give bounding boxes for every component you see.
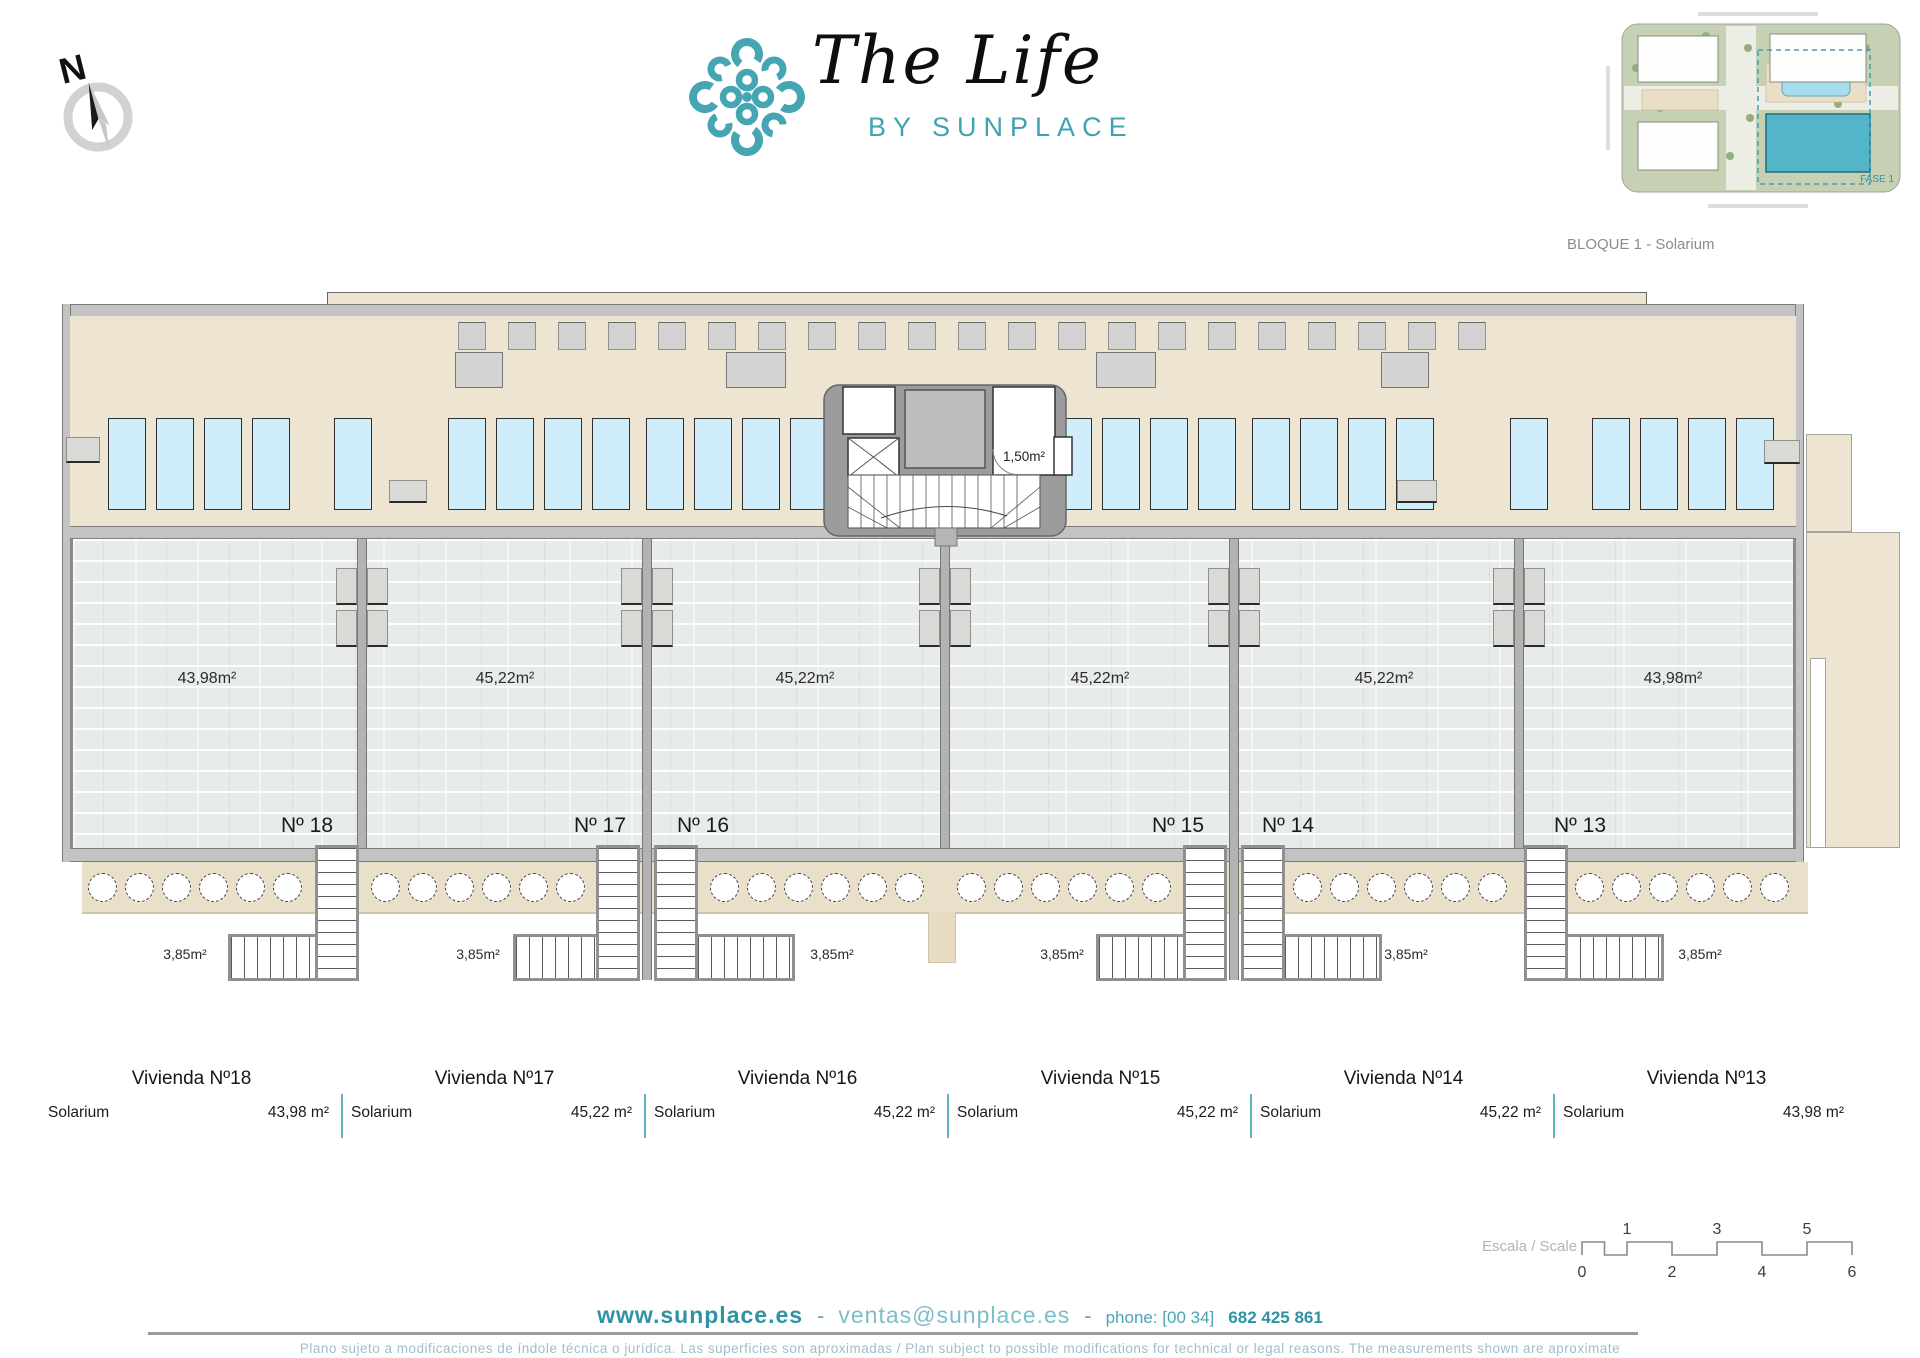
legend-area-value: 45,22 m² <box>1480 1104 1541 1122</box>
legend-room-label: Solarium <box>48 1104 109 1122</box>
sun-lounger <box>1736 418 1774 510</box>
roof-vent <box>758 322 786 350</box>
unit-area-label: 45,22m² <box>1071 670 1130 688</box>
sun-lounger <box>1592 418 1630 510</box>
roof-vent <box>958 322 986 350</box>
planter-box <box>1524 610 1545 647</box>
roof-vent <box>1158 322 1186 350</box>
round-planter <box>1649 873 1678 902</box>
legend-area-value: 45,22 m² <box>874 1104 935 1122</box>
roof-skylight <box>1096 352 1156 388</box>
legend-title: Vivienda Nº14 <box>1252 1058 1555 1090</box>
legal-disclaimer: Plano sujeto a modificaciones de índole … <box>24 1341 1896 1356</box>
round-planter <box>1686 873 1715 902</box>
planter-box <box>389 480 427 503</box>
brand-title: The Life <box>812 22 1103 99</box>
planter-box <box>367 610 388 647</box>
brand-knot-icon <box>685 34 809 162</box>
round-planter <box>88 873 117 902</box>
sun-lounger <box>1348 418 1386 510</box>
stair-area-label: 3,85m² <box>163 946 207 962</box>
scale-bar: 1 3 5 0 2 4 6 <box>1572 1206 1872 1286</box>
planter-box <box>1208 568 1229 605</box>
roof-vent <box>708 322 736 350</box>
stair-shaft-unit15 <box>1183 845 1227 981</box>
round-planter <box>858 873 887 902</box>
planter-box <box>1764 440 1800 464</box>
stair-shaft-unit14 <box>1241 845 1285 981</box>
stair-shaft-unit17 <box>596 845 640 981</box>
planter-box <box>1493 610 1514 647</box>
unit-divider-wall <box>940 539 950 848</box>
compass-north-label: N <box>55 46 90 92</box>
round-planter <box>1760 873 1789 902</box>
sun-lounger <box>1688 418 1726 510</box>
sun-lounger <box>544 418 582 510</box>
legend-column-13: Vivienda Nº13 Solarium43,98 m² <box>1555 1058 1858 1140</box>
stair-flight-unit13 <box>1564 934 1664 981</box>
sun-lounger <box>156 418 194 510</box>
roof-vent <box>1208 322 1236 350</box>
planter-box <box>1239 568 1260 605</box>
roof-vent <box>1458 322 1486 350</box>
legend-title: Vivienda Nº15 <box>949 1058 1252 1090</box>
sun-lounger <box>1300 418 1338 510</box>
round-planter <box>236 873 265 902</box>
legend-room-label: Solarium <box>351 1104 412 1122</box>
adjacent-terrace-strip <box>1806 434 1852 532</box>
sun-lounger <box>1150 418 1188 510</box>
round-planter <box>1612 873 1641 902</box>
planter-box <box>950 568 971 605</box>
planter-box <box>336 610 357 647</box>
round-planter <box>747 873 776 902</box>
block-caption: BLOQUE 1 - Solarium <box>1567 236 1715 253</box>
stair-shaft-unit16 <box>654 845 698 981</box>
round-planter <box>895 873 924 902</box>
footer-separator: - <box>1084 1303 1091 1329</box>
roof-vent <box>1108 322 1136 350</box>
round-planter <box>1478 873 1507 902</box>
website-link[interactable]: www.sunplace.es <box>597 1302 803 1329</box>
unit-area-label: 45,22m² <box>776 670 835 688</box>
footer-contact-row: www.sunplace.es - ventas@sunplace.es - p… <box>0 1302 1920 1329</box>
legend-room-label: Solarium <box>654 1104 715 1122</box>
roof-vent <box>1358 322 1386 350</box>
stair-shaft-unit13 <box>1524 845 1568 981</box>
roof-vent <box>1258 322 1286 350</box>
roof-vent <box>908 322 936 350</box>
planter-box <box>919 610 940 647</box>
planter-box <box>1524 568 1545 605</box>
svg-text:1: 1 <box>1623 1221 1632 1238</box>
sun-lounger <box>694 418 732 510</box>
roof-vent <box>808 322 836 350</box>
stair-area-label: 3,85m² <box>810 946 854 962</box>
unit-area-label: 43,98m² <box>178 670 237 688</box>
legend-column-17: Vivienda Nº17 Solarium45,22 m² <box>343 1058 646 1140</box>
stair-flight-unit14 <box>1282 934 1382 981</box>
stair-flight-unit17 <box>513 934 599 981</box>
footer-separator: - <box>817 1303 824 1329</box>
planter-box <box>66 437 100 463</box>
round-planter <box>821 873 850 902</box>
unit-area-label: 45,22m² <box>1355 670 1414 688</box>
roof-vent <box>1308 322 1336 350</box>
sun-lounger <box>252 418 290 510</box>
planter-box <box>919 568 940 605</box>
legend-title: Vivienda Nº13 <box>1555 1058 1858 1090</box>
roof-vent <box>1058 322 1086 350</box>
stair-area-label: 3,85m² <box>1678 946 1722 962</box>
sun-lounger <box>448 418 486 510</box>
round-planter <box>408 873 437 902</box>
planter-box <box>1208 610 1229 647</box>
legend-title: Vivienda Nº18 <box>40 1058 343 1090</box>
sun-lounger <box>496 418 534 510</box>
stair-flight-unit18 <box>228 934 318 981</box>
round-planter <box>957 873 986 902</box>
phone-label: phone: [00 34] <box>1106 1308 1215 1328</box>
round-planter <box>1441 873 1470 902</box>
round-planter <box>162 873 191 902</box>
legend-column-15: Vivienda Nº15 Solarium45,22 m² <box>949 1058 1252 1140</box>
unit-number-label: Nº 13 <box>1554 814 1606 838</box>
round-planter <box>1575 873 1604 902</box>
footer-divider <box>148 1332 1638 1335</box>
email-link[interactable]: ventas@sunplace.es <box>838 1302 1070 1329</box>
unit-number-label: Nº 17 <box>574 814 626 838</box>
round-planter <box>1105 873 1134 902</box>
unit-number-label: Nº 16 <box>677 814 729 838</box>
stair-area-label: 3,85m² <box>1384 946 1428 962</box>
round-planter <box>1031 873 1060 902</box>
svg-text:6: 6 <box>1848 1264 1857 1281</box>
legend-room-label: Solarium <box>957 1104 1018 1122</box>
unit-legend-table: Vivienda Nº18 Solarium43,98 m² Vivienda … <box>40 1058 1858 1140</box>
right-wall <box>1795 304 1804 862</box>
legend-column-16: Vivienda Nº16 Solarium45,22 m² <box>646 1058 949 1140</box>
legend-area-value: 45,22 m² <box>1177 1104 1238 1122</box>
roof-vent <box>508 322 536 350</box>
roof-vent <box>658 322 686 350</box>
unit-divider-wall <box>1514 539 1524 848</box>
scale-label: Escala / Scale <box>1482 1238 1577 1255</box>
core-area-label: 1,50m² <box>1003 449 1046 464</box>
round-planter <box>199 873 228 902</box>
sun-lounger <box>1252 418 1290 510</box>
sun-lounger <box>1102 418 1140 510</box>
sun-lounger <box>1640 418 1678 510</box>
round-planter <box>273 873 302 902</box>
roof-skylight <box>455 352 503 388</box>
round-planter <box>994 873 1023 902</box>
stair-core: 1,50m² <box>823 384 1075 548</box>
phone-number: 682 425 861 <box>1228 1308 1323 1328</box>
walkway-stub <box>928 912 956 963</box>
roof-vent <box>608 322 636 350</box>
planter-box <box>652 568 673 605</box>
svg-text:4: 4 <box>1758 1264 1767 1281</box>
unit-area-label: 43,98m² <box>1644 670 1703 688</box>
stair-area-label: 3,85m² <box>1040 946 1084 962</box>
planter-box <box>621 568 642 605</box>
planter-box <box>652 610 673 647</box>
sun-lounger <box>108 418 146 510</box>
planter-box <box>336 568 357 605</box>
round-planter <box>445 873 474 902</box>
legend-column-18: Vivienda Nº18 Solarium43,98 m² <box>40 1058 343 1140</box>
planter-box <box>1493 568 1514 605</box>
stair-shaft-unit18 <box>315 845 359 981</box>
roof-vent <box>1408 322 1436 350</box>
round-planter <box>482 873 511 902</box>
roof-vent <box>1008 322 1036 350</box>
round-planter <box>784 873 813 902</box>
svg-text:2: 2 <box>1668 1264 1677 1281</box>
stair-flight-unit15 <box>1096 934 1186 981</box>
legend-room-label: Solarium <box>1260 1104 1321 1122</box>
unit-area-label: 45,22m² <box>476 670 535 688</box>
legend-area-value: 45,22 m² <box>571 1104 632 1122</box>
stair-flight-unit16 <box>695 934 795 981</box>
legend-title: Vivienda Nº16 <box>646 1058 949 1090</box>
sun-lounger <box>646 418 684 510</box>
round-planter <box>371 873 400 902</box>
unit-number-label: Nº 18 <box>281 814 333 838</box>
legend-room-label: Solarium <box>1563 1104 1624 1122</box>
roof-vent <box>558 322 586 350</box>
brand-subtitle: BY SUNPLACE <box>868 112 1134 143</box>
stair-area-label: 3,85m² <box>456 946 500 962</box>
planter-box <box>950 610 971 647</box>
roof-skylight <box>1381 352 1429 388</box>
round-planter <box>710 873 739 902</box>
planter-box <box>621 610 642 647</box>
unit-divider-wall <box>357 539 367 848</box>
round-planter <box>1404 873 1433 902</box>
legend-title: Vivienda Nº17 <box>343 1058 646 1090</box>
sun-lounger <box>204 418 242 510</box>
unit-divider-wall <box>1229 539 1239 980</box>
svg-text:0: 0 <box>1578 1264 1587 1281</box>
round-planter <box>519 873 548 902</box>
unit-number-label: Nº 14 <box>1262 814 1314 838</box>
compass-icon: N <box>40 35 170 165</box>
sun-lounger <box>592 418 630 510</box>
round-planter <box>556 873 585 902</box>
round-planter <box>1367 873 1396 902</box>
adjacent-terrace-slot <box>1810 658 1826 848</box>
unit-divider-wall <box>642 539 652 980</box>
sun-lounger <box>1198 418 1236 510</box>
svg-text:3: 3 <box>1713 1221 1722 1238</box>
round-planter <box>1068 873 1097 902</box>
sun-lounger <box>334 418 372 510</box>
legend-area-value: 43,98 m² <box>1783 1104 1844 1122</box>
sun-lounger <box>1510 418 1548 510</box>
round-planter <box>125 873 154 902</box>
round-planter <box>1330 873 1359 902</box>
roof-vent <box>458 322 486 350</box>
fase-label: FASE 1 <box>1860 174 1894 185</box>
planter-box <box>1239 610 1260 647</box>
legend-column-14: Vivienda Nº14 Solarium45,22 m² <box>1252 1058 1555 1140</box>
roof-skylight <box>726 352 786 388</box>
planter-box <box>1397 480 1437 503</box>
round-planter <box>1142 873 1171 902</box>
planter-box <box>367 568 388 605</box>
roof-vent <box>858 322 886 350</box>
floor-plan-page: N The Life BY SUNPLACE <box>0 0 1920 1358</box>
unit-number-label: Nº 15 <box>1152 814 1204 838</box>
round-planter <box>1293 873 1322 902</box>
site-plan-thumbnail: FASE 1 <box>1598 6 1918 216</box>
sun-lounger <box>742 418 780 510</box>
legend-area-value: 43,98 m² <box>268 1104 329 1122</box>
round-planter <box>1723 873 1752 902</box>
svg-text:5: 5 <box>1803 1221 1812 1238</box>
